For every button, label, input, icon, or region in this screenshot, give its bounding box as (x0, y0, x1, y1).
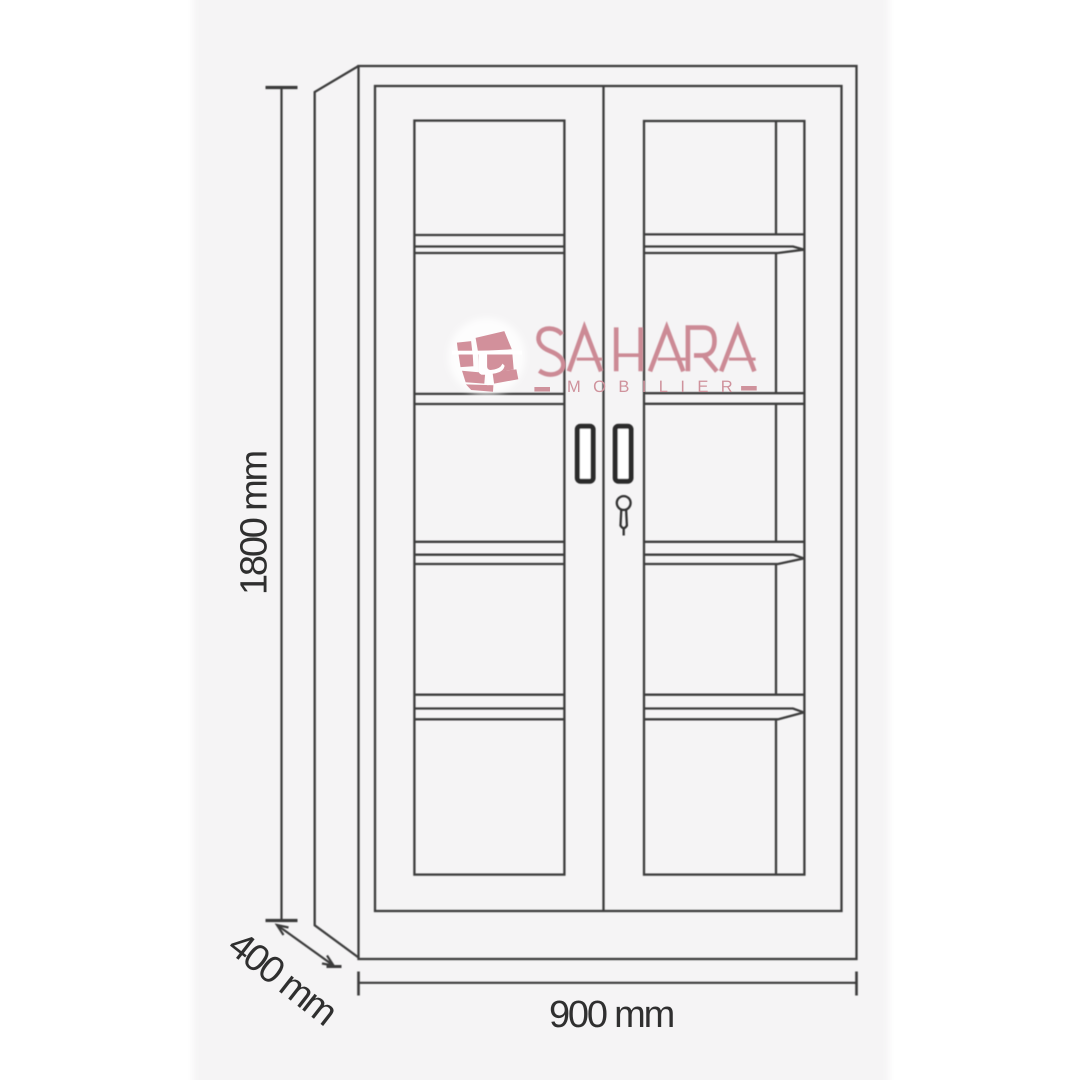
svg-text:900 mm: 900 mm (549, 994, 674, 1036)
svg-text:1800 mm: 1800 mm (234, 451, 276, 595)
svg-text:MOBILIER: MOBILIER (567, 378, 745, 396)
